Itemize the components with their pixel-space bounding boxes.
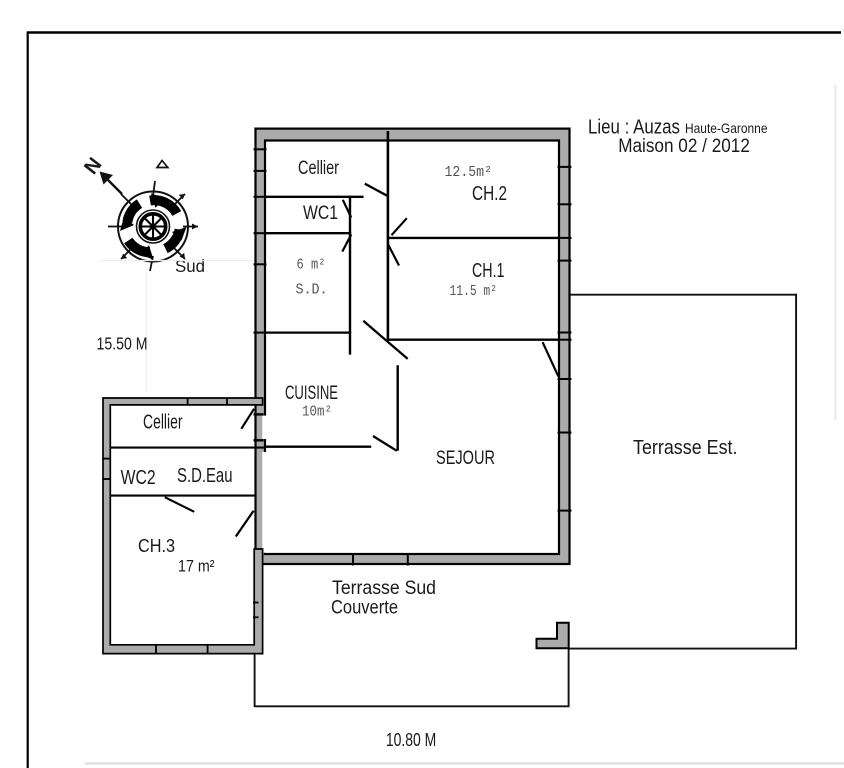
svg-text:17 m²: 17 m² xyxy=(178,558,215,576)
svg-text:WC1: WC1 xyxy=(303,203,338,224)
svg-text:12.5m²: 12.5m² xyxy=(445,165,493,181)
svg-text:6 m²: 6 m² xyxy=(297,258,326,274)
svg-text:SEJOUR: SEJOUR xyxy=(436,447,495,469)
svg-text:WC2: WC2 xyxy=(121,467,156,489)
svg-text:Couverte: Couverte xyxy=(331,597,398,619)
svg-text:Terrasse Est.: Terrasse Est. xyxy=(633,436,738,459)
svg-text:15.50 M: 15.50 M xyxy=(97,334,148,354)
svg-text:S.D.Eau: S.D.Eau xyxy=(177,465,233,487)
svg-text:CH.1: CH.1 xyxy=(472,259,505,282)
svg-text:10m²: 10m² xyxy=(302,405,332,421)
svg-text:S.D.: S.D. xyxy=(296,283,328,299)
svg-text:CH.2: CH.2 xyxy=(472,182,507,205)
svg-text:Sud: Sud xyxy=(175,256,205,276)
svg-text:10.80 M: 10.80 M xyxy=(386,730,436,750)
svg-text:CH.3: CH.3 xyxy=(138,535,175,556)
svg-text:Maison 02 / 2012: Maison 02 / 2012 xyxy=(618,135,750,157)
svg-text:11.5 m²: 11.5 m² xyxy=(450,284,498,300)
svg-text:Haute-Garonne: Haute-Garonne xyxy=(685,120,768,136)
svg-text:Cellier: Cellier xyxy=(298,158,340,179)
svg-text:Cellier: Cellier xyxy=(143,412,183,434)
svg-text:CUISINE: CUISINE xyxy=(285,383,338,404)
